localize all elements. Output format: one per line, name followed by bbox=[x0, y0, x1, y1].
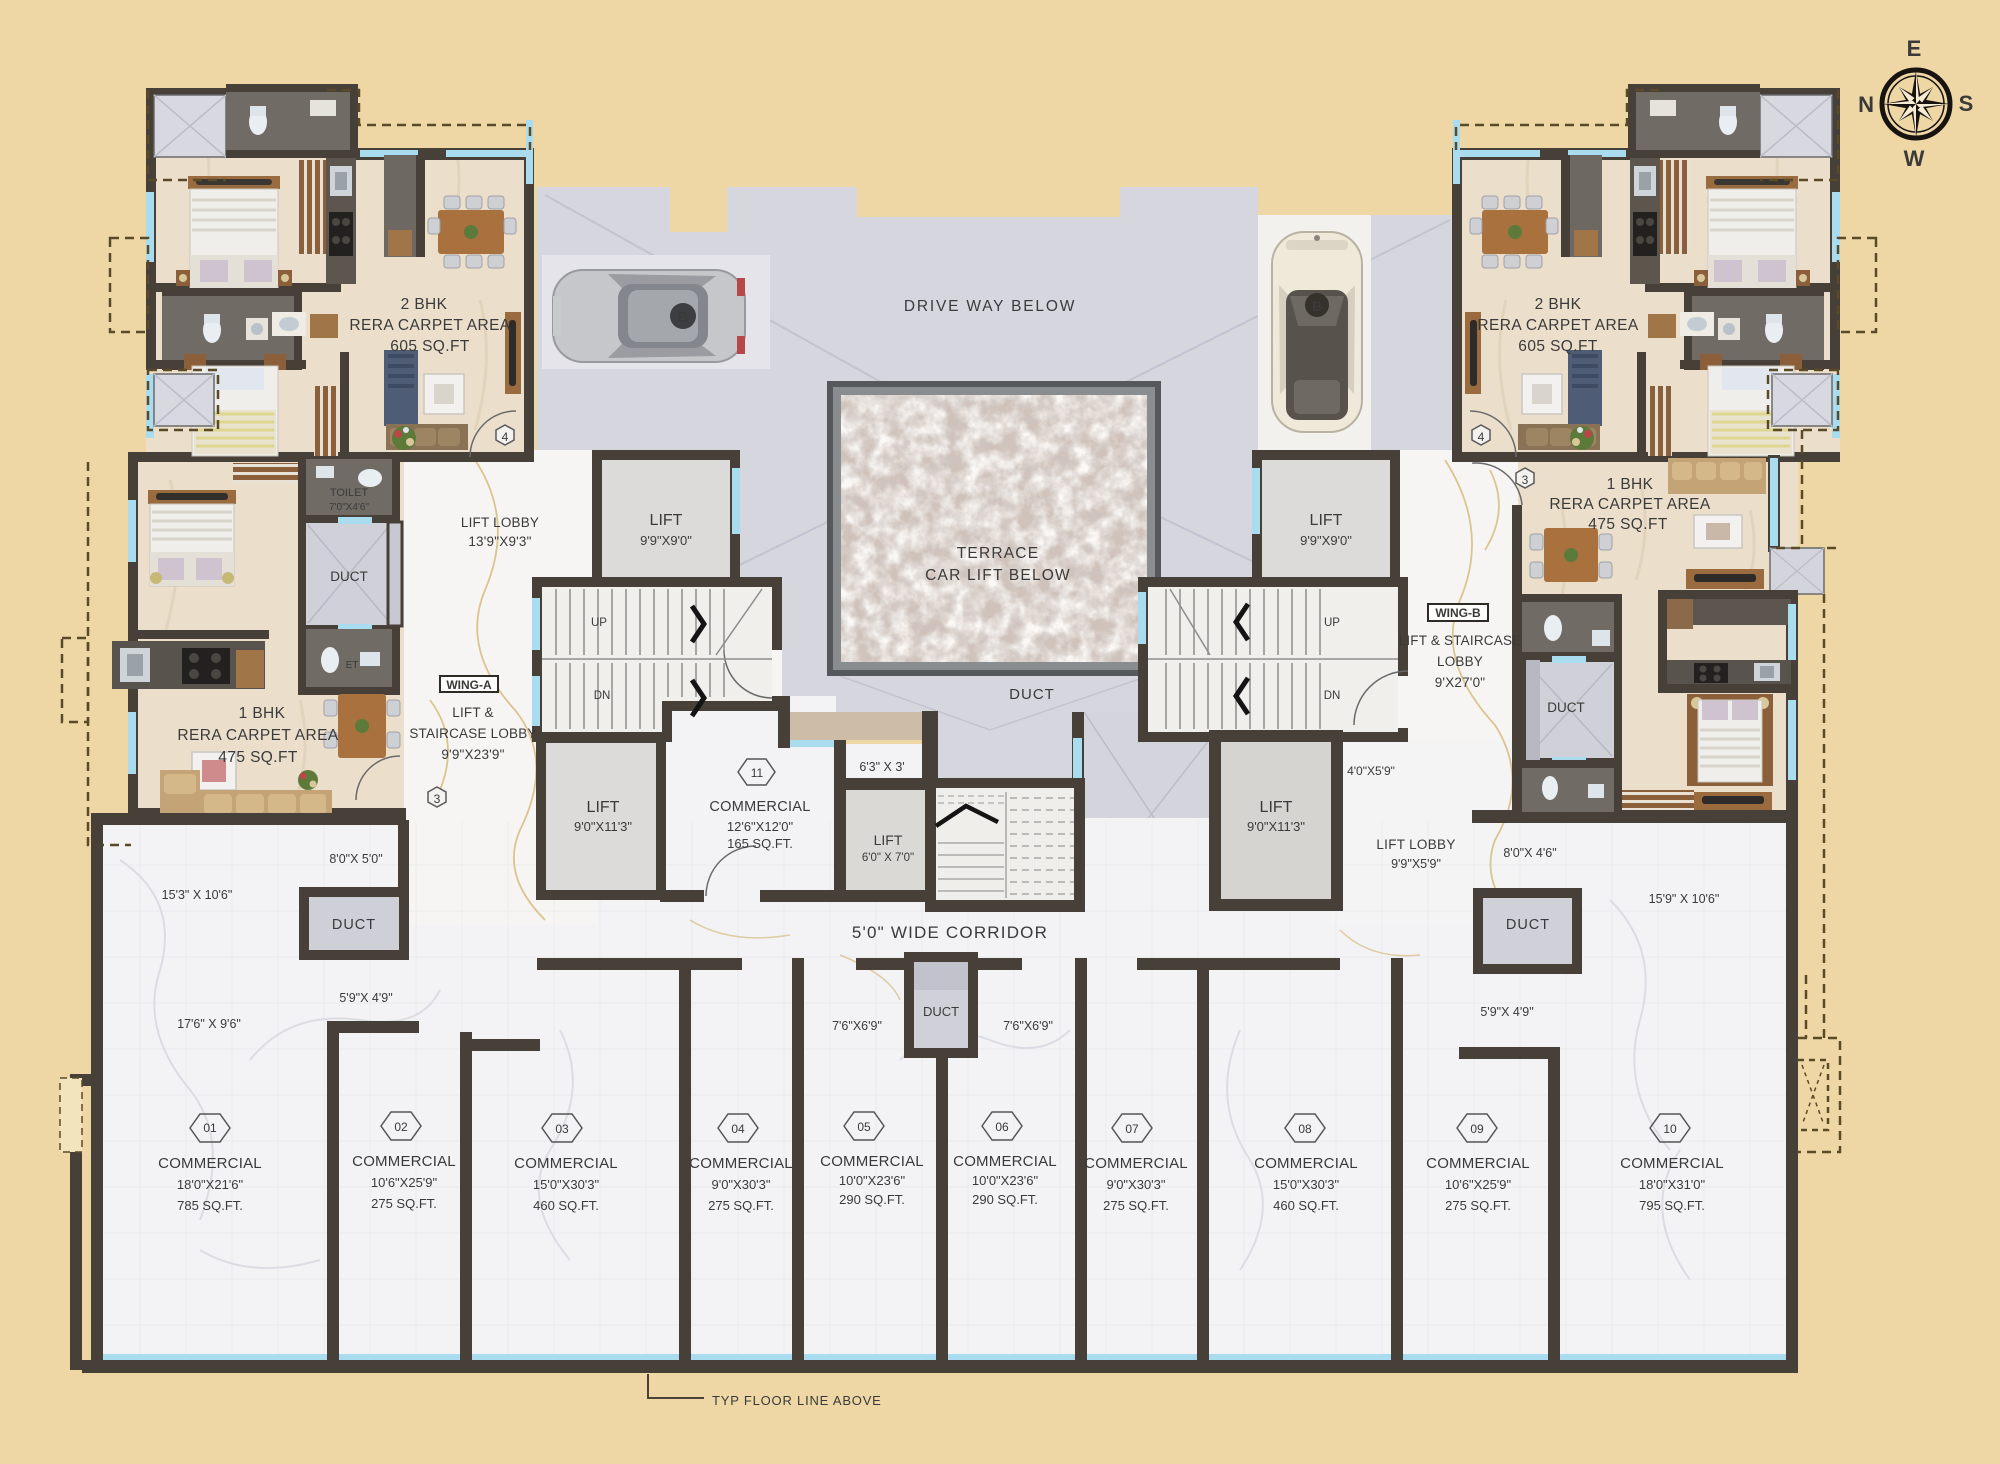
svg-text:09: 09 bbox=[1470, 1122, 1484, 1136]
svg-text:E: E bbox=[1907, 36, 1922, 61]
svg-text:9'9"X9'0": 9'9"X9'0" bbox=[640, 533, 692, 548]
svg-text:DUCT: DUCT bbox=[1506, 917, 1550, 933]
svg-text:460 SQ.FT.: 460 SQ.FT. bbox=[533, 1198, 599, 1213]
svg-text:18'0"X21'6": 18'0"X21'6" bbox=[177, 1177, 244, 1192]
svg-text:LIFT: LIFT bbox=[874, 832, 903, 848]
svg-text:3: 3 bbox=[1522, 473, 1529, 487]
svg-text:RERA CARPET AREA: RERA CARPET AREA bbox=[1549, 496, 1710, 513]
svg-text:UP: UP bbox=[1324, 617, 1340, 629]
svg-text:9'0"X30'3": 9'0"X30'3" bbox=[1106, 1177, 1165, 1192]
svg-text:RERA CARPET AREA: RERA CARPET AREA bbox=[1477, 317, 1638, 334]
svg-text:RERA CARPET AREA: RERA CARPET AREA bbox=[177, 727, 338, 744]
svg-text:10'0"X23'6": 10'0"X23'6" bbox=[972, 1173, 1039, 1188]
svg-text:DUCT: DUCT bbox=[330, 569, 368, 584]
svg-text:COMMERCIAL: COMMERCIAL bbox=[820, 1153, 924, 1170]
svg-text:04: 04 bbox=[731, 1122, 745, 1136]
svg-text:5'0" WIDE CORRIDOR: 5'0" WIDE CORRIDOR bbox=[852, 923, 1048, 942]
svg-text:01: 01 bbox=[203, 1121, 217, 1135]
svg-text:9'0"X11'3": 9'0"X11'3" bbox=[574, 819, 632, 834]
svg-text:COMMERCIAL: COMMERCIAL bbox=[689, 1155, 793, 1172]
svg-text:9'9"X23'9": 9'9"X23'9" bbox=[441, 747, 504, 762]
svg-text:COMMERCIAL: COMMERCIAL bbox=[1254, 1155, 1358, 1172]
svg-text:LIFT LOBBY: LIFT LOBBY bbox=[1376, 837, 1455, 852]
svg-text:605 SQ.FT: 605 SQ.FT bbox=[1518, 338, 1598, 355]
svg-text:03: 03 bbox=[555, 1122, 569, 1136]
svg-text:275 SQ.FT.: 275 SQ.FT. bbox=[708, 1198, 774, 1213]
svg-text:DN: DN bbox=[1324, 690, 1341, 702]
svg-text:LIFT: LIFT bbox=[650, 512, 683, 529]
svg-text:B: B bbox=[1312, 298, 1322, 314]
svg-text:290 SQ.FT.: 290 SQ.FT. bbox=[839, 1192, 905, 1207]
svg-text:9'9"X9'0": 9'9"X9'0" bbox=[1300, 533, 1352, 548]
svg-text:CAR LIFT BELOW: CAR LIFT BELOW bbox=[925, 567, 1071, 584]
svg-text:N: N bbox=[1858, 92, 1874, 117]
svg-text:795 SQ.FT.: 795 SQ.FT. bbox=[1639, 1198, 1705, 1213]
svg-text:275 SQ.FT.: 275 SQ.FT. bbox=[1445, 1198, 1511, 1213]
svg-text:10: 10 bbox=[1663, 1122, 1677, 1136]
svg-text:7'0"X4'6": 7'0"X4'6" bbox=[329, 502, 369, 513]
svg-text:COMMERCIAL: COMMERCIAL bbox=[1620, 1155, 1724, 1172]
svg-text:1 BHK: 1 BHK bbox=[239, 705, 286, 722]
svg-text:10'6"X25'9": 10'6"X25'9" bbox=[371, 1175, 438, 1190]
svg-text:UP: UP bbox=[591, 617, 607, 629]
svg-text:TOILET: TOILET bbox=[330, 487, 369, 499]
svg-text:475 SQ.FT: 475 SQ.FT bbox=[1588, 516, 1668, 533]
svg-text:DUCT: DUCT bbox=[332, 917, 376, 933]
svg-text:COMMERCIAL: COMMERCIAL bbox=[1426, 1155, 1530, 1172]
svg-text:LIFT LOBBY: LIFT LOBBY bbox=[461, 515, 539, 530]
svg-text:290 SQ.FT.: 290 SQ.FT. bbox=[972, 1192, 1038, 1207]
svg-text:4: 4 bbox=[1478, 430, 1485, 444]
svg-text:605 SQ.FT: 605 SQ.FT bbox=[390, 338, 470, 355]
svg-text:DUCT: DUCT bbox=[1547, 700, 1585, 715]
svg-text:9'X27'0": 9'X27'0" bbox=[1435, 675, 1486, 690]
svg-text:DRIVE WAY BELOW: DRIVE WAY BELOW bbox=[904, 298, 1076, 315]
svg-text:COMMERCIAL: COMMERCIAL bbox=[158, 1155, 262, 1172]
svg-text:10'0"X23'6": 10'0"X23'6" bbox=[839, 1173, 906, 1188]
svg-text:275 SQ.FT.: 275 SQ.FT. bbox=[371, 1196, 437, 1211]
svg-text:WING-A: WING-A bbox=[446, 678, 492, 692]
svg-text:LIFT &: LIFT & bbox=[452, 705, 493, 720]
svg-text:07: 07 bbox=[1125, 1122, 1139, 1136]
svg-text:15'3" X 10'6": 15'3" X 10'6" bbox=[162, 888, 233, 902]
svg-text:7'6"X6'9": 7'6"X6'9" bbox=[1003, 1019, 1053, 1033]
svg-text:9'9"X5'9": 9'9"X5'9" bbox=[1391, 857, 1441, 871]
svg-text:460 SQ.FT.: 460 SQ.FT. bbox=[1273, 1198, 1339, 1213]
svg-text:DN: DN bbox=[594, 690, 611, 702]
svg-text:6'0" X 7'0": 6'0" X 7'0" bbox=[862, 852, 914, 864]
svg-text:COMMERCIAL: COMMERCIAL bbox=[514, 1155, 618, 1172]
svg-text:06: 06 bbox=[995, 1120, 1009, 1134]
svg-text:5'9"X 4'9": 5'9"X 4'9" bbox=[339, 991, 392, 1005]
svg-text:LOBBY: LOBBY bbox=[1437, 654, 1483, 669]
svg-text:COMMERCIAL: COMMERCIAL bbox=[709, 799, 810, 815]
svg-text:LIFT: LIFT bbox=[587, 799, 620, 816]
svg-text:LIFT & STAIRCASE: LIFT & STAIRCASE bbox=[1399, 633, 1522, 648]
svg-text:TYP FLOOR LINE ABOVE: TYP FLOOR LINE ABOVE bbox=[712, 1393, 882, 1408]
svg-text:STAIRCASE LOBBY: STAIRCASE LOBBY bbox=[409, 726, 536, 741]
svg-text:4'0"X5'9": 4'0"X5'9" bbox=[1347, 764, 1395, 778]
svg-text:9'0"X11'3": 9'0"X11'3" bbox=[1247, 819, 1305, 834]
svg-text:11: 11 bbox=[751, 766, 764, 780]
svg-text:165 SQ.FT.: 165 SQ.FT. bbox=[727, 836, 793, 851]
svg-text:08: 08 bbox=[1298, 1122, 1312, 1136]
svg-text:3: 3 bbox=[434, 792, 441, 806]
svg-text:RERA CARPET AREA: RERA CARPET AREA bbox=[349, 317, 510, 334]
svg-text:785 SQ.FT.: 785 SQ.FT. bbox=[177, 1198, 243, 1213]
svg-text:10'6"X25'9": 10'6"X25'9" bbox=[1445, 1177, 1512, 1192]
svg-text:8'0"X 5'0": 8'0"X 5'0" bbox=[329, 852, 382, 866]
svg-text:COMMERCIAL: COMMERCIAL bbox=[953, 1153, 1057, 1170]
svg-text:15'0"X30'3": 15'0"X30'3" bbox=[533, 1177, 600, 1192]
svg-text:LIFT: LIFT bbox=[1310, 512, 1343, 529]
svg-text:12'6"X12'0": 12'6"X12'0" bbox=[727, 819, 794, 834]
svg-text:DUCT: DUCT bbox=[1009, 686, 1055, 703]
svg-text:275 SQ.FT.: 275 SQ.FT. bbox=[1103, 1198, 1169, 1213]
svg-text:DUCT: DUCT bbox=[923, 1004, 959, 1019]
svg-text:TERRACE: TERRACE bbox=[957, 545, 1039, 562]
svg-text:8'0"X 4'6": 8'0"X 4'6" bbox=[1503, 846, 1556, 860]
svg-text:WING-B: WING-B bbox=[1435, 606, 1481, 620]
svg-text:4: 4 bbox=[502, 430, 509, 444]
svg-text:9'0"X30'3": 9'0"X30'3" bbox=[711, 1177, 770, 1192]
svg-text:15'0"X30'3": 15'0"X30'3" bbox=[1273, 1177, 1340, 1192]
svg-text:2 BHK: 2 BHK bbox=[401, 296, 448, 313]
svg-text:B: B bbox=[678, 309, 689, 326]
svg-text:S: S bbox=[1959, 91, 1974, 116]
svg-text:COMMERCIAL: COMMERCIAL bbox=[352, 1153, 456, 1170]
svg-text:LIFT: LIFT bbox=[1260, 799, 1293, 816]
svg-text:05: 05 bbox=[857, 1120, 871, 1134]
svg-text:18'0"X31'0": 18'0"X31'0" bbox=[1639, 1177, 1706, 1192]
svg-text:7'6"X6'9": 7'6"X6'9" bbox=[832, 1019, 882, 1033]
svg-text:02: 02 bbox=[394, 1120, 408, 1134]
svg-text:13'9"X9'3": 13'9"X9'3" bbox=[468, 534, 531, 549]
svg-text:5'9"X 4'9": 5'9"X 4'9" bbox=[1480, 1005, 1533, 1019]
svg-text:2 BHK: 2 BHK bbox=[1535, 296, 1582, 313]
svg-text:ET: ET bbox=[346, 660, 359, 671]
svg-text:6'3" X 3': 6'3" X 3' bbox=[859, 760, 904, 774]
svg-text:15'9" X 10'6": 15'9" X 10'6" bbox=[1649, 892, 1720, 906]
svg-text:COMMERCIAL: COMMERCIAL bbox=[1084, 1155, 1188, 1172]
svg-text:W: W bbox=[1904, 146, 1925, 171]
svg-text:17'6" X 9'6": 17'6" X 9'6" bbox=[177, 1017, 241, 1031]
svg-text:1 BHK: 1 BHK bbox=[1607, 476, 1654, 493]
svg-text:475 SQ.FT: 475 SQ.FT bbox=[218, 749, 298, 766]
